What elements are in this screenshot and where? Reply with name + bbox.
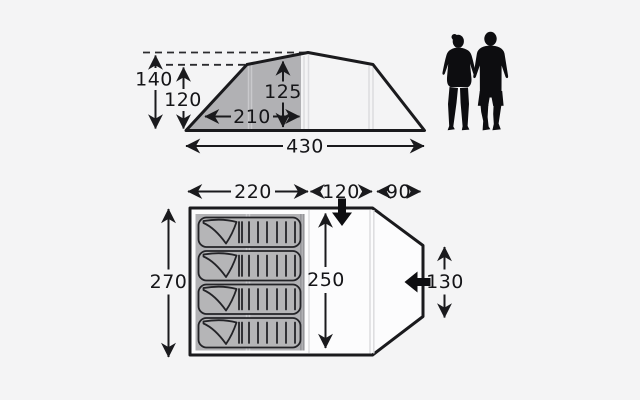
dim-label-canopy-width: 90 <box>386 181 411 203</box>
dim-label-peak-height: 140 <box>135 69 173 91</box>
dim-label-total-length: 430 <box>286 135 324 157</box>
sleeping-mat <box>199 285 301 315</box>
dim-front-door-width: 130 <box>426 247 464 318</box>
sleeping-mat <box>199 218 301 248</box>
dim-label-shoulder-height: 120 <box>164 89 202 111</box>
dim-total-length: 430 <box>186 135 424 157</box>
dim-total-depth: 270 <box>150 209 188 357</box>
dim-label-bedroom-height: 125 <box>264 81 302 103</box>
man-silhouette-icon <box>473 32 508 131</box>
dim-canopy-width: 90 <box>377 181 421 203</box>
dim-living-area-width: 120 <box>311 181 373 203</box>
sleeping-mat <box>199 251 301 281</box>
dim-label-total-depth: 270 <box>150 271 188 293</box>
sleeping-mat <box>199 318 301 348</box>
side-view-diagram: 140 120 125 210 430 <box>135 53 424 158</box>
floor-plan-diagram: 220 120 90 270 250 130 <box>150 181 464 357</box>
dim-label-bedroom-length: 210 <box>233 106 271 128</box>
dim-label-front-door-width: 130 <box>426 271 464 293</box>
dim-bedroom-width: 220 <box>188 181 308 203</box>
diagram-canvas: 140 120 125 210 430 <box>0 0 640 400</box>
adult-couple-silhouette <box>442 32 508 131</box>
dim-label-inner-depth: 250 <box>307 269 345 291</box>
tent-dimensions-diagram: 140 120 125 210 430 <box>0 0 640 400</box>
woman-silhouette-icon <box>442 34 475 130</box>
dim-label-bedroom-width: 220 <box>234 181 272 203</box>
dim-label-living-area-width: 120 <box>322 181 360 203</box>
